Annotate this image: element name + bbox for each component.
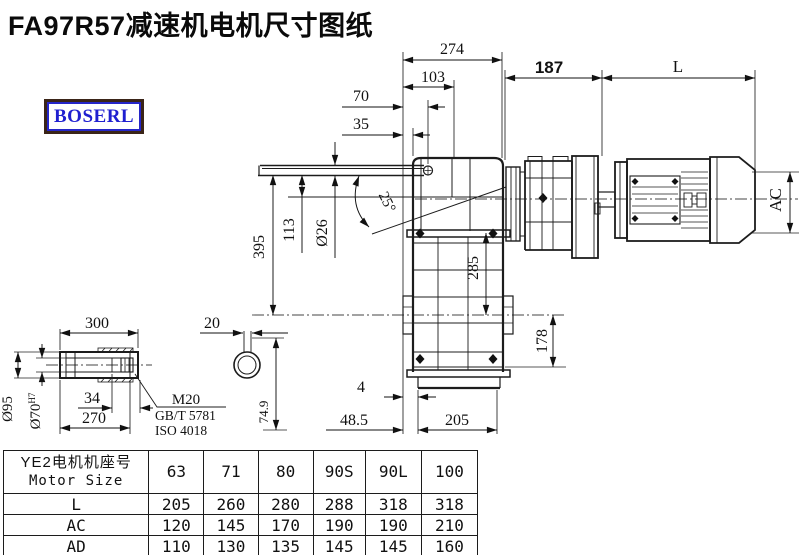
dim-dia-70-h7: Ø70H7 <box>27 392 44 429</box>
dim-103: 103 <box>421 69 445 86</box>
motor-flange <box>615 162 627 238</box>
table-row-L: L 205 260 280 288 318 318 <box>4 494 478 515</box>
dim-74-9: 74.9 <box>256 401 271 424</box>
dim-35: 35 <box>353 116 369 133</box>
table-cell: 145 <box>204 515 258 536</box>
dim-270: 270 <box>82 410 106 427</box>
shaft-extension-lines <box>14 329 287 434</box>
dimension-labels: 274 103 70 35 187 L 25° 395 113 Ø26 285 … <box>251 41 785 429</box>
header-en: Motor Size <box>4 473 148 491</box>
brand-logo-text: BOSERL <box>47 102 141 131</box>
dim-L: L <box>673 57 683 76</box>
dim-70: 70 <box>353 88 369 105</box>
drawing-page: FA97R57减速机电机尺寸图纸 BOSERL <box>0 0 800 555</box>
dim-178: 178 <box>534 329 551 353</box>
table-cell: 190 <box>365 515 421 536</box>
table-cell: 135 <box>258 536 313 555</box>
table-cell: 80 <box>258 451 313 494</box>
table-cell: 145 <box>313 536 365 555</box>
table-cell: 120 <box>149 515 204 536</box>
table-cell: 71 <box>204 451 258 494</box>
table-row-AC: AC 120 145 170 190 190 210 <box>4 515 478 536</box>
table-cell: 90S <box>313 451 365 494</box>
dim-395: 395 <box>251 235 268 259</box>
table-cell: 288 <box>313 494 365 515</box>
table-cell: 318 <box>365 494 421 515</box>
gearbox-body <box>403 230 513 388</box>
table-cell: 130 <box>204 536 258 555</box>
table-cell: 280 <box>258 494 313 515</box>
table-cell: 318 <box>421 494 477 515</box>
dim-AC: AC <box>766 188 785 212</box>
shaft-dimension-lines <box>18 333 288 430</box>
dim-113: 113 <box>281 218 298 241</box>
header-cn: YE2电机机座号 <box>4 454 148 473</box>
dimension-lines <box>273 60 790 430</box>
dim-285: 285 <box>465 256 482 280</box>
table-cell: 190 <box>313 515 365 536</box>
dim-20: 20 <box>204 315 220 332</box>
dim-187: 187 <box>535 58 563 77</box>
thread-callout-m20: M20 <box>172 392 200 408</box>
dim-48-5: 48.5 <box>340 412 368 429</box>
dim-angle-25: 25° <box>375 189 399 215</box>
brand-logo: BOSERL <box>44 99 144 134</box>
standard-iso: ISO 4018 <box>155 423 207 438</box>
dim-4: 4 <box>357 379 365 396</box>
dim-274: 274 <box>440 41 464 58</box>
table-row-AD: AD 110 130 135 145 145 160 <box>4 536 478 555</box>
table-cell: 210 <box>421 515 477 536</box>
table-cell: 170 <box>258 515 313 536</box>
dim-arm-dia-26: Ø26 <box>314 219 331 247</box>
table-cell: 110 <box>149 536 204 555</box>
dim-300: 300 <box>85 315 109 332</box>
row-label: AC <box>4 515 149 536</box>
table-header-row: YE2电机机座号 Motor Size 63 71 80 90S 90L 100 <box>4 451 478 494</box>
row-label: AD <box>4 536 149 555</box>
dim-34: 34 <box>84 390 100 407</box>
table-cell: 260 <box>204 494 258 515</box>
motor-size-table: YE2电机机座号 Motor Size 63 71 80 90S 90L 100… <box>3 450 478 555</box>
r57-gear-unit <box>506 156 600 258</box>
table-cell: 160 <box>421 536 477 555</box>
dim-205: 205 <box>445 412 469 429</box>
table-cell: 205 <box>149 494 204 515</box>
dim-dia-95: Ø95 <box>0 396 16 422</box>
gearbox-main-view <box>258 156 755 388</box>
standard-gb: GB/T 5781 <box>155 408 216 423</box>
table-cell: 100 <box>421 451 477 494</box>
center-lines <box>46 199 798 365</box>
table-header-motor-size: YE2电机机座号 Motor Size <box>4 451 149 494</box>
row-label: L <box>4 494 149 515</box>
table-cell: 145 <box>365 536 421 555</box>
table-cell: 63 <box>149 451 204 494</box>
motor <box>598 157 755 243</box>
motor-body <box>627 159 710 241</box>
page-title: FA97R57减速机电机尺寸图纸 <box>8 4 373 43</box>
table-cell: 90L <box>365 451 421 494</box>
motor-shaft-stub <box>598 192 615 207</box>
